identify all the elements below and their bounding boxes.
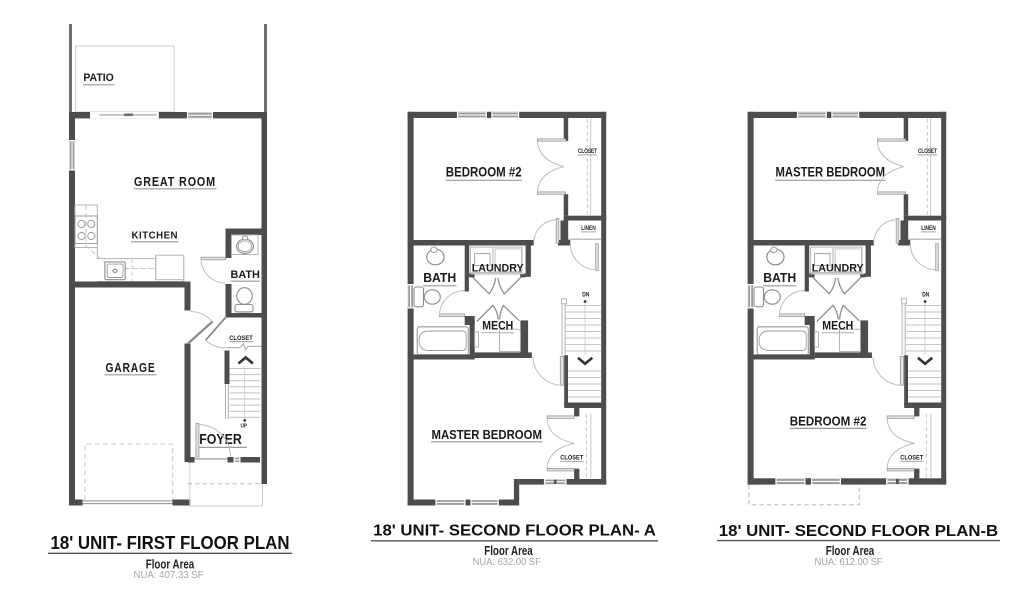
svg-text:MASTER BEDROOM: MASTER BEDROOM — [432, 427, 542, 442]
svg-text:MASTER BEDROOM: MASTER BEDROOM — [776, 164, 886, 179]
svg-text:CLOSET: CLOSET — [918, 149, 937, 155]
svg-text:NUA: 407.33 SF: NUA: 407.33 SF — [134, 569, 204, 581]
svg-text:BATH: BATH — [230, 269, 260, 281]
svg-text:18' UNIT- FIRST FLOOR PLAN: 18' UNIT- FIRST FLOOR PLAN — [51, 532, 290, 553]
svg-text:LAUNDRY: LAUNDRY — [812, 263, 865, 275]
svg-text:MECH: MECH — [482, 320, 513, 332]
svg-text:BATH: BATH — [763, 271, 796, 285]
svg-text:BEDROOM #2: BEDROOM #2 — [790, 413, 867, 428]
svg-text:18' UNIT- SECOND FLOOR PLAN- A: 18' UNIT- SECOND FLOOR PLAN- A — [373, 523, 656, 540]
svg-text:CLOSET: CLOSET — [560, 455, 583, 461]
svg-text:CLOSET: CLOSET — [229, 335, 253, 342]
svg-text:DN: DN — [922, 292, 929, 298]
svg-text:NUA: 612.00 SF: NUA: 612.00 SF — [815, 556, 883, 568]
svg-text:BATH: BATH — [423, 271, 456, 285]
svg-text:CLOSET: CLOSET — [900, 455, 923, 461]
svg-text:BEDROOM #2: BEDROOM #2 — [446, 164, 522, 179]
svg-text:FOYER: FOYER — [199, 432, 242, 448]
svg-text:NUA: 632.00 SF: NUA: 632.00 SF — [473, 556, 541, 568]
svg-text:PATIO: PATIO — [83, 72, 114, 84]
svg-text:LINEN: LINEN — [581, 226, 596, 232]
svg-text:18' UNIT- SECOND FLOOR PLAN-B: 18' UNIT- SECOND FLOOR PLAN-B — [719, 523, 998, 540]
svg-text:MECH: MECH — [822, 320, 853, 332]
svg-text:LINEN: LINEN — [921, 226, 936, 232]
svg-text:GREAT ROOM: GREAT ROOM — [134, 175, 216, 189]
svg-text:DN: DN — [582, 292, 589, 298]
svg-text:GARAGE: GARAGE — [106, 361, 156, 375]
svg-text:KITCHEN: KITCHEN — [132, 230, 179, 241]
svg-text:LAUNDRY: LAUNDRY — [472, 263, 525, 275]
svg-text:UP: UP — [241, 423, 248, 429]
svg-text:CLOSET: CLOSET — [578, 149, 597, 155]
